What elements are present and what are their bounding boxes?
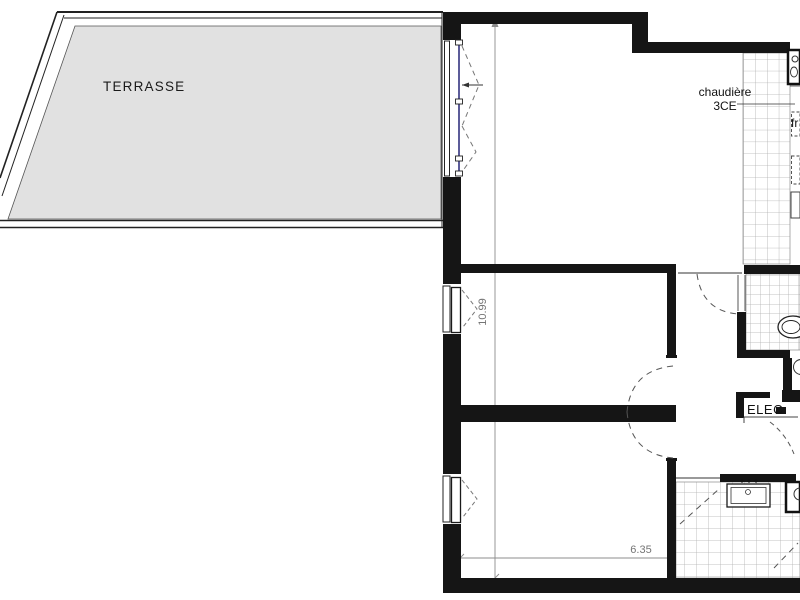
tall-window <box>443 40 483 177</box>
boiler-label-line2: 3CE <box>713 99 736 113</box>
wc-fixtures <box>778 316 800 338</box>
terrace-area: TERRASSE <box>0 12 443 228</box>
wall-bottom <box>443 578 800 593</box>
window-hinge-2 <box>456 99 463 104</box>
floor-plan-canvas: TERRASSE 10.99 6.35 <box>0 0 800 600</box>
bedroom1-window-sash <box>452 288 461 333</box>
bedroom2-window <box>441 474 477 524</box>
washing-machine <box>794 360 800 375</box>
tall-window-swing <box>462 46 479 172</box>
terrace-label: TERRASSE <box>103 79 185 94</box>
wall-top-right <box>645 42 790 53</box>
wall-endcap-2 <box>666 458 677 461</box>
boiler-label-line1: chaudière <box>699 85 752 99</box>
window-hinge-1 <box>456 40 463 45</box>
elec-label: ELEC <box>747 402 783 417</box>
bedroom1-window-frame <box>443 286 450 332</box>
floor-plan: TERRASSE 10.99 6.35 <box>0 0 800 600</box>
bedroom2-window-frame <box>443 476 450 522</box>
wall-top-left <box>443 12 645 24</box>
closet-fixtures <box>794 360 800 375</box>
bedroom1-window-swing <box>462 290 477 327</box>
wall-bedrooms-divider <box>461 405 676 422</box>
window-hinge-4 <box>456 171 463 176</box>
wall-left-upper-block <box>443 24 461 40</box>
wall-elec-corner <box>782 390 800 402</box>
elec-door-swing <box>770 422 794 454</box>
bathroom-fixtures <box>727 479 800 512</box>
shower-column <box>786 482 800 512</box>
horizontal-dimension-value: 6.35 <box>630 544 651 556</box>
wall-below-wc <box>737 350 790 358</box>
dimension-lines <box>456 18 676 583</box>
window-hinge-3 <box>456 156 463 161</box>
wall-elec-top <box>736 392 770 398</box>
wall-wc-top <box>744 265 800 274</box>
wall-bathroom-left <box>667 458 676 578</box>
wall-endcap-1 <box>666 355 677 358</box>
tall-window-frame <box>445 41 450 176</box>
tall-window-handle-arrow <box>462 83 469 88</box>
toilet-bowl <box>778 316 800 338</box>
vertical-dimension-value: 10.99 <box>477 298 489 326</box>
wall-wc-left <box>737 312 746 352</box>
wall-bedroom1-top <box>459 264 676 273</box>
bedroom2-window-swing <box>462 480 477 517</box>
wall-left <box>443 177 461 593</box>
fridge-label: fr <box>791 116 798 130</box>
cooktop-outline <box>791 192 800 218</box>
terrace-floor <box>8 26 441 219</box>
bedroom2-window-sash <box>452 478 461 523</box>
appliance-outline <box>792 156 800 184</box>
kitchen-door-swing <box>697 274 738 314</box>
wall-bedroom1-right <box>667 264 676 358</box>
bedroom1-window <box>441 284 477 334</box>
wall-elec-left <box>736 398 744 418</box>
